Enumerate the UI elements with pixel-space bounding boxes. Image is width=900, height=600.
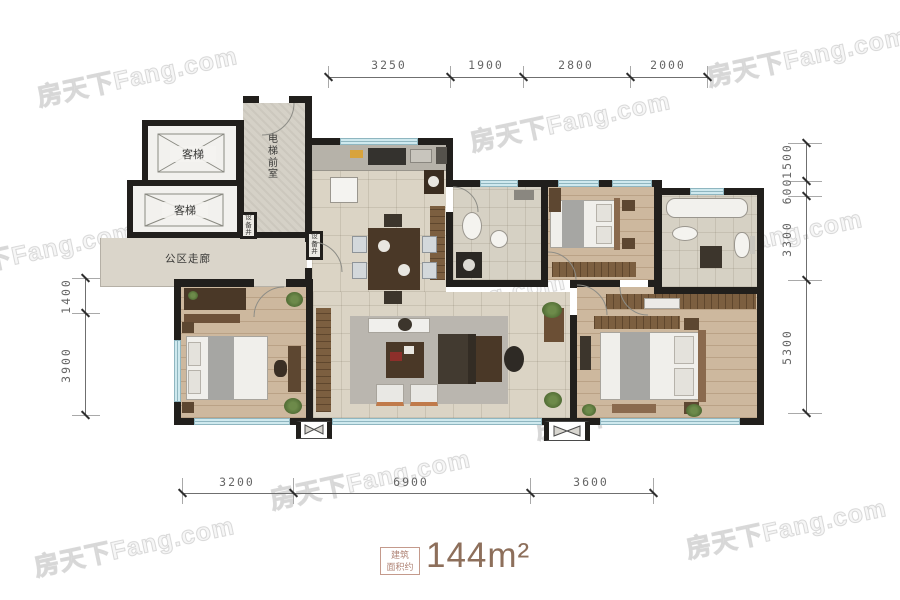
dim-right-3: 3300 xyxy=(780,219,794,259)
dim-line-left xyxy=(85,278,86,415)
dim-right-2: 600 xyxy=(780,171,794,211)
area-tag-line1: 建筑 xyxy=(383,549,417,561)
plan-linework xyxy=(0,0,900,600)
dim-bottom-3: 3600 xyxy=(561,475,621,489)
dim-bottom-1: 3200 xyxy=(207,475,267,489)
area-tag-line2: 面积约 xyxy=(383,561,417,573)
dim-left-1: 1400 xyxy=(59,276,73,316)
area-value: 144m² xyxy=(426,536,530,576)
dim-top-4: 2000 xyxy=(638,58,698,72)
dim-bottom-2: 6900 xyxy=(381,475,441,489)
equipment-shaft-b-label: 设备井 xyxy=(309,233,320,256)
equipment-shaft-a-label: 设备井 xyxy=(243,214,254,237)
dim-line-bottom xyxy=(182,493,653,494)
dim-top-1: 3250 xyxy=(359,58,419,72)
elevator-b-label: 客梯 xyxy=(162,202,208,218)
elevator-a-label: 客梯 xyxy=(170,146,216,162)
elevator-lobby-label: 电梯前室 xyxy=(266,134,280,181)
area-tag: 建筑 面积约 xyxy=(380,547,420,575)
floorplan-page: 房天下Fang.com 房天下Fang.com 房天下Fang.com 房天下F… xyxy=(0,0,900,600)
dim-right-4: 5300 xyxy=(780,327,794,367)
dim-top-2: 1900 xyxy=(456,58,516,72)
corridor-label: 公区走廊 xyxy=(158,251,218,266)
dim-left-2: 3900 xyxy=(59,345,73,385)
dim-top-3: 2800 xyxy=(546,58,606,72)
dim-line-top xyxy=(328,77,707,78)
